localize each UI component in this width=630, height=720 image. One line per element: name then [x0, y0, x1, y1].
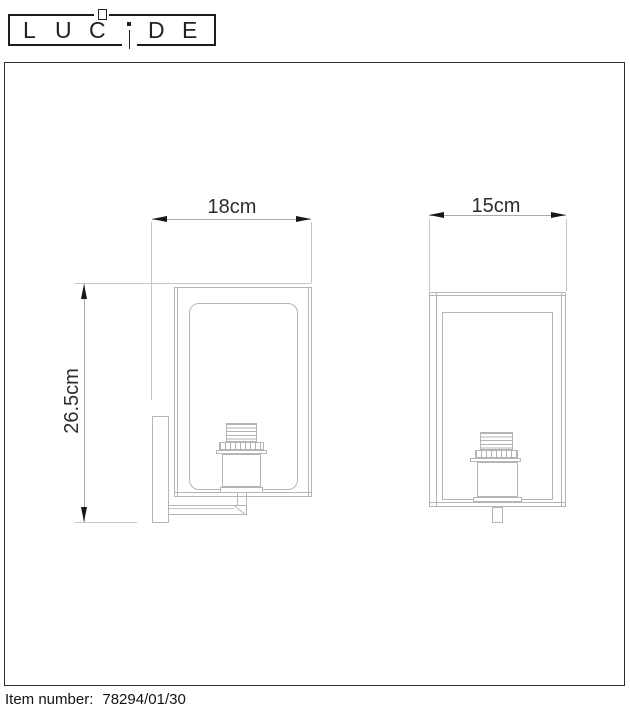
front-socket-thread: [226, 423, 257, 442]
front-width-dimension-line: [152, 219, 311, 220]
side-socket-body: [477, 462, 518, 497]
front-mount-arm-inner-line: [169, 508, 234, 509]
logo-letter-d: D: [148, 16, 165, 44]
front-height-dimension-line: [84, 284, 85, 522]
side-width-extension-right: [566, 219, 567, 291]
front-wall-plate: [152, 416, 169, 523]
front-width-extension-left: [151, 222, 152, 400]
front-stem: [237, 493, 247, 505]
front-height-label: 26.5cm: [61, 356, 83, 446]
front-socket-collar: [219, 442, 264, 450]
front-height-extension-bottom: [75, 522, 137, 523]
side-housing-inner-right: [561, 292, 562, 508]
front-height-arrow-top-icon: [81, 284, 87, 299]
front-width-arrow-right-icon: [296, 216, 311, 222]
logo-letter-l: L: [23, 16, 36, 44]
front-housing-inner-right: [308, 287, 309, 497]
front-width-label: 18cm: [200, 196, 264, 218]
side-housing-inner-top: [429, 295, 566, 296]
logo-letter-e: E: [182, 16, 197, 44]
item-number-label: Item number:: [5, 691, 93, 708]
side-stem: [492, 507, 503, 523]
side-width-arrow-left-icon: [429, 212, 444, 218]
lucide-logo: L U C D E: [8, 14, 216, 46]
side-socket-thread: [480, 432, 513, 450]
front-height-extension-top: [75, 283, 311, 284]
side-housing-inner-bottom: [429, 502, 566, 503]
item-number-value: 78294/01/30: [102, 691, 185, 708]
side-socket-collar: [475, 450, 518, 458]
front-width-arrow-left-icon: [152, 216, 167, 222]
side-width-arrow-right-icon: [551, 212, 566, 218]
spec-sheet-page: L U C D E 18cm 26.5cm 15cm: [0, 0, 630, 720]
front-housing-inner-left: [177, 287, 178, 497]
item-number: Item number:78294/01/30: [5, 691, 186, 708]
side-width-label: 15cm: [464, 195, 528, 217]
logo-c-dot-icon: [98, 9, 107, 20]
side-width-extension-left: [429, 219, 430, 291]
side-housing-inner-left: [436, 292, 437, 508]
side-width-dimension-line: [429, 215, 566, 216]
side-socket-ring: [473, 497, 522, 502]
logo-letter-u: U: [55, 16, 72, 44]
front-height-arrow-bottom-icon: [81, 507, 87, 522]
front-socket-body: [222, 454, 261, 487]
logo-i-dot-icon: [127, 22, 131, 26]
logo-letter-i: [129, 30, 131, 49]
front-width-extension-right: [311, 222, 312, 283]
logo-letter-c: C: [89, 16, 106, 44]
